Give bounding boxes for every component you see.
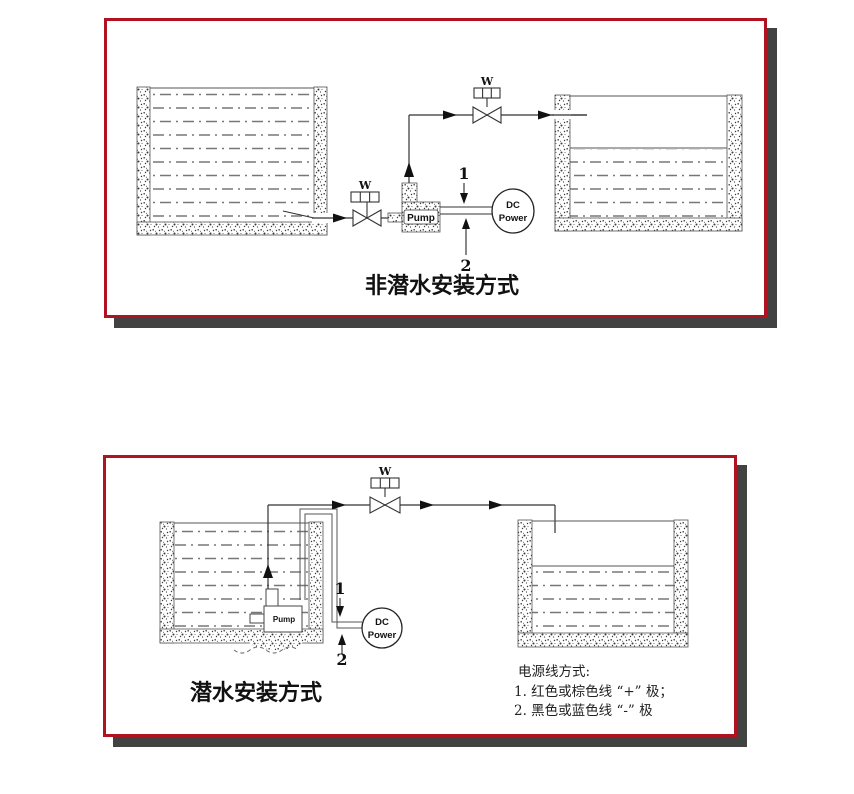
submersible-diagram: Pump W DC Power 1 2 (106, 458, 734, 734)
non-submersible-diagram-panel: W Pump W DC Power (104, 18, 767, 318)
tank-wall-left (137, 87, 150, 235)
water (570, 149, 727, 218)
tank-floor (137, 222, 327, 235)
flow-arrow-icon (332, 501, 346, 510)
flow-arrow-up-icon (404, 162, 414, 177)
water (150, 87, 314, 222)
dc-power-supply: DC Power (362, 608, 402, 648)
tank-wall-right (674, 520, 688, 633)
discharge-valve (473, 88, 501, 123)
power-line-notes: 电源线方式: 1. 红色或棕色线 “+” 极； 2. 黑色或蓝色线 “-” 极 (514, 664, 673, 719)
valve-label: W (358, 179, 372, 192)
source-tank (137, 87, 328, 235)
pump: Pump (388, 183, 440, 232)
notes-item-1: 1. 红色或棕色线 “+” 极； (514, 683, 673, 700)
flow-arrow-icon (443, 111, 457, 120)
submersible-diagram-panel: Pump W DC Power 1 2 (103, 455, 737, 737)
tank-wall-left (518, 520, 532, 633)
pointer-up-icon (462, 218, 470, 229)
tank-wall-right (314, 87, 327, 235)
dc-label: DC (375, 617, 389, 628)
flow-arrow-icon (420, 501, 434, 510)
receiving-tank (518, 520, 688, 647)
pump-label: Pump (407, 213, 435, 224)
valve-label: W (480, 75, 494, 88)
flow-arrow-icon (333, 214, 347, 223)
wire-1-label: 1 (334, 579, 345, 598)
pointer-up-icon (338, 634, 346, 645)
tank-wall-right (309, 522, 323, 643)
power-label: Power (499, 213, 528, 224)
flow-arrow-icon (538, 111, 552, 120)
non-submersible-diagram: W Pump W DC Power (107, 21, 764, 315)
valve-label: W (378, 465, 392, 478)
tank-floor (518, 633, 688, 647)
diagram-title: 非潜水安装方式 (365, 273, 519, 298)
water (532, 566, 674, 633)
tank-wall-right (727, 95, 742, 231)
power-label: Power (368, 630, 397, 641)
diagram-title: 潜水安装方式 (190, 680, 322, 705)
suction-valve (351, 192, 381, 226)
flow-arrow-icon (489, 501, 503, 510)
pointer-down-icon (460, 193, 468, 204)
dc-power-supply: DC Power (492, 189, 534, 233)
dc-label: DC (506, 200, 520, 211)
discharge-valve (370, 478, 400, 513)
notes-heading: 电源线方式: (518, 664, 590, 680)
tank-wall-left (160, 522, 174, 643)
tank-floor (555, 218, 742, 231)
notes-item-2: 2. 黑色或蓝色线 “-” 极 (514, 702, 653, 719)
pump-label: Pump (273, 615, 295, 624)
wire-1-label: 1 (458, 164, 469, 183)
